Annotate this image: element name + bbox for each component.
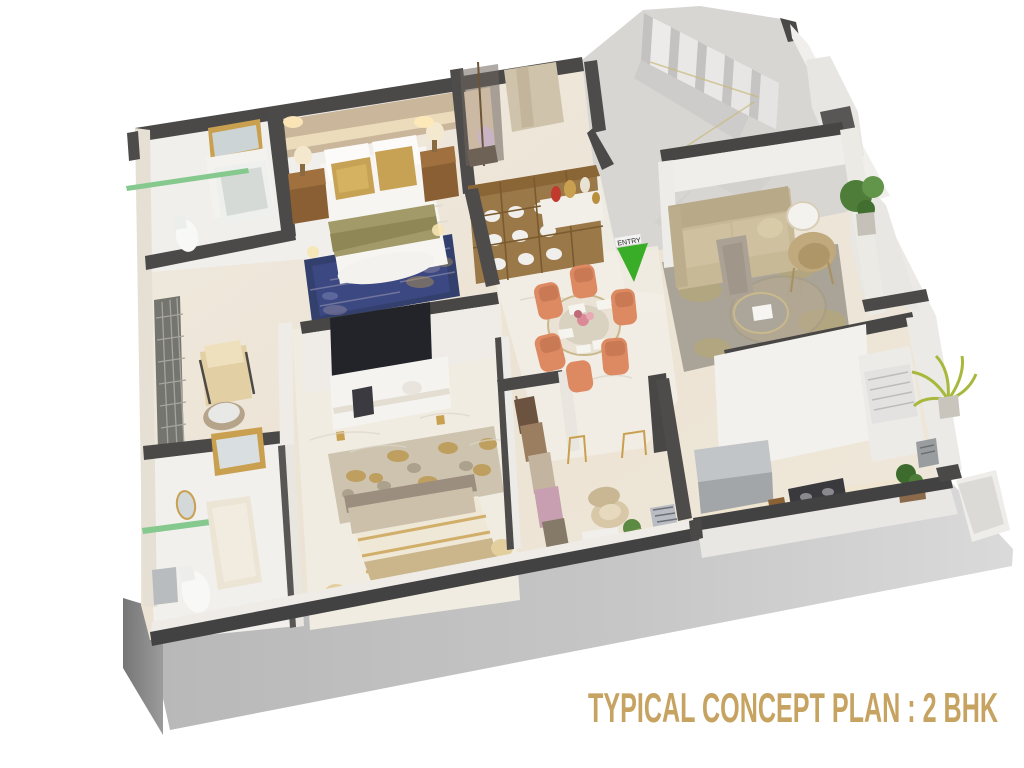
svg-text:TYPICAL CONCEPT PLAN : 2 BHK: TYPICAL CONCEPT PLAN : 2 BHK [588, 684, 998, 731]
